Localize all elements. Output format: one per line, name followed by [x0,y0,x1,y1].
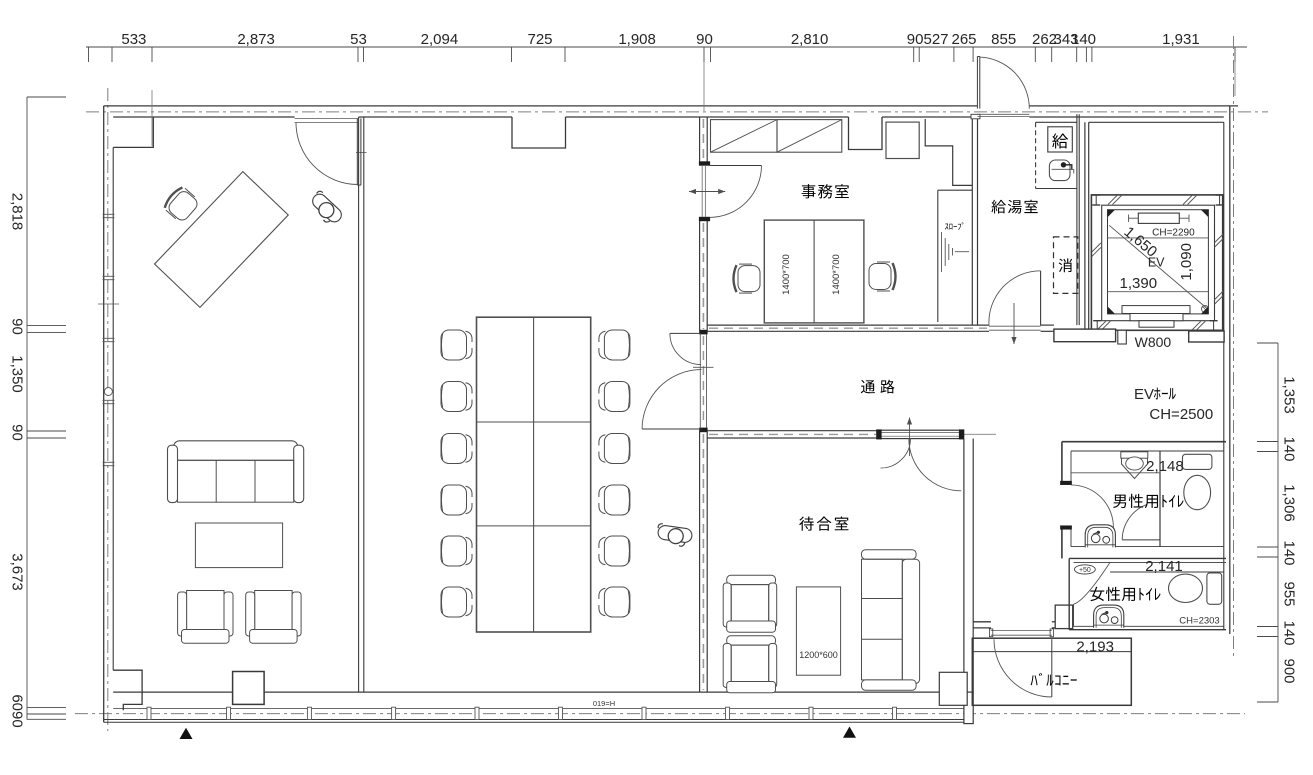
svg-text:140: 140 [1281,620,1298,645]
svg-text:1,931: 1,931 [1162,31,1200,48]
svg-text:1,353: 1,353 [1281,376,1298,414]
svg-text:265: 265 [951,31,976,48]
svg-text:527: 527 [923,31,948,48]
svg-text:CH=2303: CH=2303 [1179,615,1219,626]
svg-text:955: 955 [1281,581,1298,606]
svg-text:6090: 6090 [9,694,26,727]
svg-text:90: 90 [907,31,924,48]
svg-text:1,908: 1,908 [618,31,656,48]
svg-text:1,090: 1,090 [1178,243,1195,281]
svg-text:140: 140 [1281,540,1298,565]
svg-text:140: 140 [1281,436,1298,461]
svg-text:1,306: 1,306 [1281,484,1298,522]
svg-text:W800: W800 [1135,334,1172,350]
svg-text:1400*700: 1400*700 [781,254,792,295]
svg-text:CH=2500: CH=2500 [1149,406,1213,423]
svg-text:1400*700: 1400*700 [831,254,842,295]
svg-text:2,818: 2,818 [9,193,26,231]
svg-text:2,094: 2,094 [421,31,459,48]
svg-text:2,141: 2,141 [1145,558,1183,575]
svg-text:2,810: 2,810 [791,31,829,48]
svg-text:1200*600: 1200*600 [799,650,838,660]
svg-text:2,873: 2,873 [237,31,275,48]
svg-text:725: 725 [527,31,552,48]
svg-text:019=H: 019=H [593,699,615,708]
svg-text:3,673: 3,673 [9,553,26,591]
svg-text:+50: +50 [1079,567,1091,574]
svg-text:533: 533 [121,31,146,48]
svg-text:90: 90 [696,31,713,48]
svg-text:90: 90 [9,318,26,335]
svg-text:855: 855 [991,31,1016,48]
svg-text:900: 900 [1281,658,1298,683]
svg-text:53: 53 [350,31,367,48]
svg-text:EV: EV [1134,386,1154,403]
svg-text:2,193: 2,193 [1076,639,1114,656]
svg-text:1,350: 1,350 [9,355,26,393]
svg-text:140: 140 [1071,31,1096,48]
svg-text:CH=2290: CH=2290 [1152,228,1195,239]
svg-text:2,148: 2,148 [1146,458,1184,475]
svg-text:1,390: 1,390 [1120,275,1158,292]
svg-text:90: 90 [9,424,26,441]
